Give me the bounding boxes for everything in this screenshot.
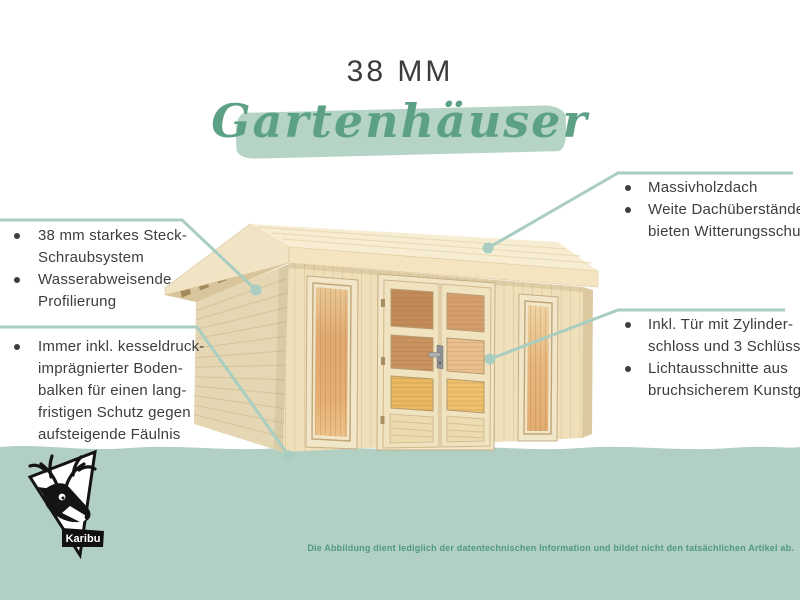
bullet-dot [14,233,20,239]
feature-item: Lichtausschnitte aus bruchsicherem Kunst… [622,358,798,402]
feature-item: Wasserabweisende Profilierung [10,269,200,313]
feature-line: aufsteigende Fäulnis [38,424,205,446]
feature-line: Immer inkl. kesseldruck- [38,336,205,358]
feature-line: Lichtausschnitte aus [648,358,800,380]
disclaimer-text: Die Abbildung dient lediglich der datent… [307,543,794,553]
feature-item: 38 mm starkes Steck- Schraubsystem [10,225,200,269]
feature-line: Inkl. Tür mit Zylinder- [648,314,800,336]
feature-item: Massivholzdach [622,177,798,199]
feature-line: 38 mm starkes Steck- [38,225,187,247]
bullet-dot [625,322,631,328]
infographic-canvas: Karibu 38 MM Gartenhäuser 38 mm starkes … [0,0,800,600]
feature-line: bieten Witterungsschutz [648,221,800,243]
garden-house [165,224,598,452]
double-door [377,274,495,450]
page-title: 38 MM [0,55,800,89]
callout-dot-base [284,451,295,462]
bullet-dot [14,344,20,350]
bullet-dot [625,185,631,191]
feature-line: bruchsicherem Kunstglas [648,380,800,402]
bullet-dot [625,207,631,213]
feature-line: Wasserabweisende [38,269,172,291]
feature-item: Weite Dachüberstände bieten Witterungssc… [622,199,798,243]
feature-list-right-bottom: Inkl. Tür mit Zylinder- schloss und 3 Sc… [622,314,798,402]
feature-line: schloss und 3 Schlüsseln [648,336,800,358]
bullet-dot [14,277,20,283]
page-subtitle: Gartenhäuser [0,94,800,148]
callout-dot-roof-right [483,243,494,254]
feature-line: Profilierung [38,291,172,313]
bullet-dot [625,366,631,372]
feature-item: Immer inkl. kesseldruck- imprägnierter B… [10,336,210,446]
callout-dot-door [485,354,496,365]
wall-right-sliver [582,287,593,438]
feature-list-left-top: 38 mm starkes Steck- Schraubsystem Wasse… [10,225,200,313]
window-right [518,294,558,441]
feature-line: fristigen Schutz gegen [38,402,205,424]
feature-item: Inkl. Tür mit Zylinder- schloss und 3 Sc… [622,314,798,358]
ground-band [0,446,800,600]
feature-line: imprägnierter Boden- [38,358,205,380]
callout-dot-roof-left [251,285,262,296]
feature-list-left-bottom: Immer inkl. kesseldruck- imprägnierter B… [10,336,210,446]
logo-text: Karibu [66,533,101,545]
feature-list-right-top: Massivholzdach Weite Dachüberstände biet… [622,177,798,243]
feature-line: Weite Dachüberstände [648,199,800,221]
feature-line: balken für einen lang- [38,380,205,402]
feature-line: Massivholzdach [648,177,758,199]
window-left [306,276,358,449]
feature-line: Schraubsystem [38,247,187,269]
